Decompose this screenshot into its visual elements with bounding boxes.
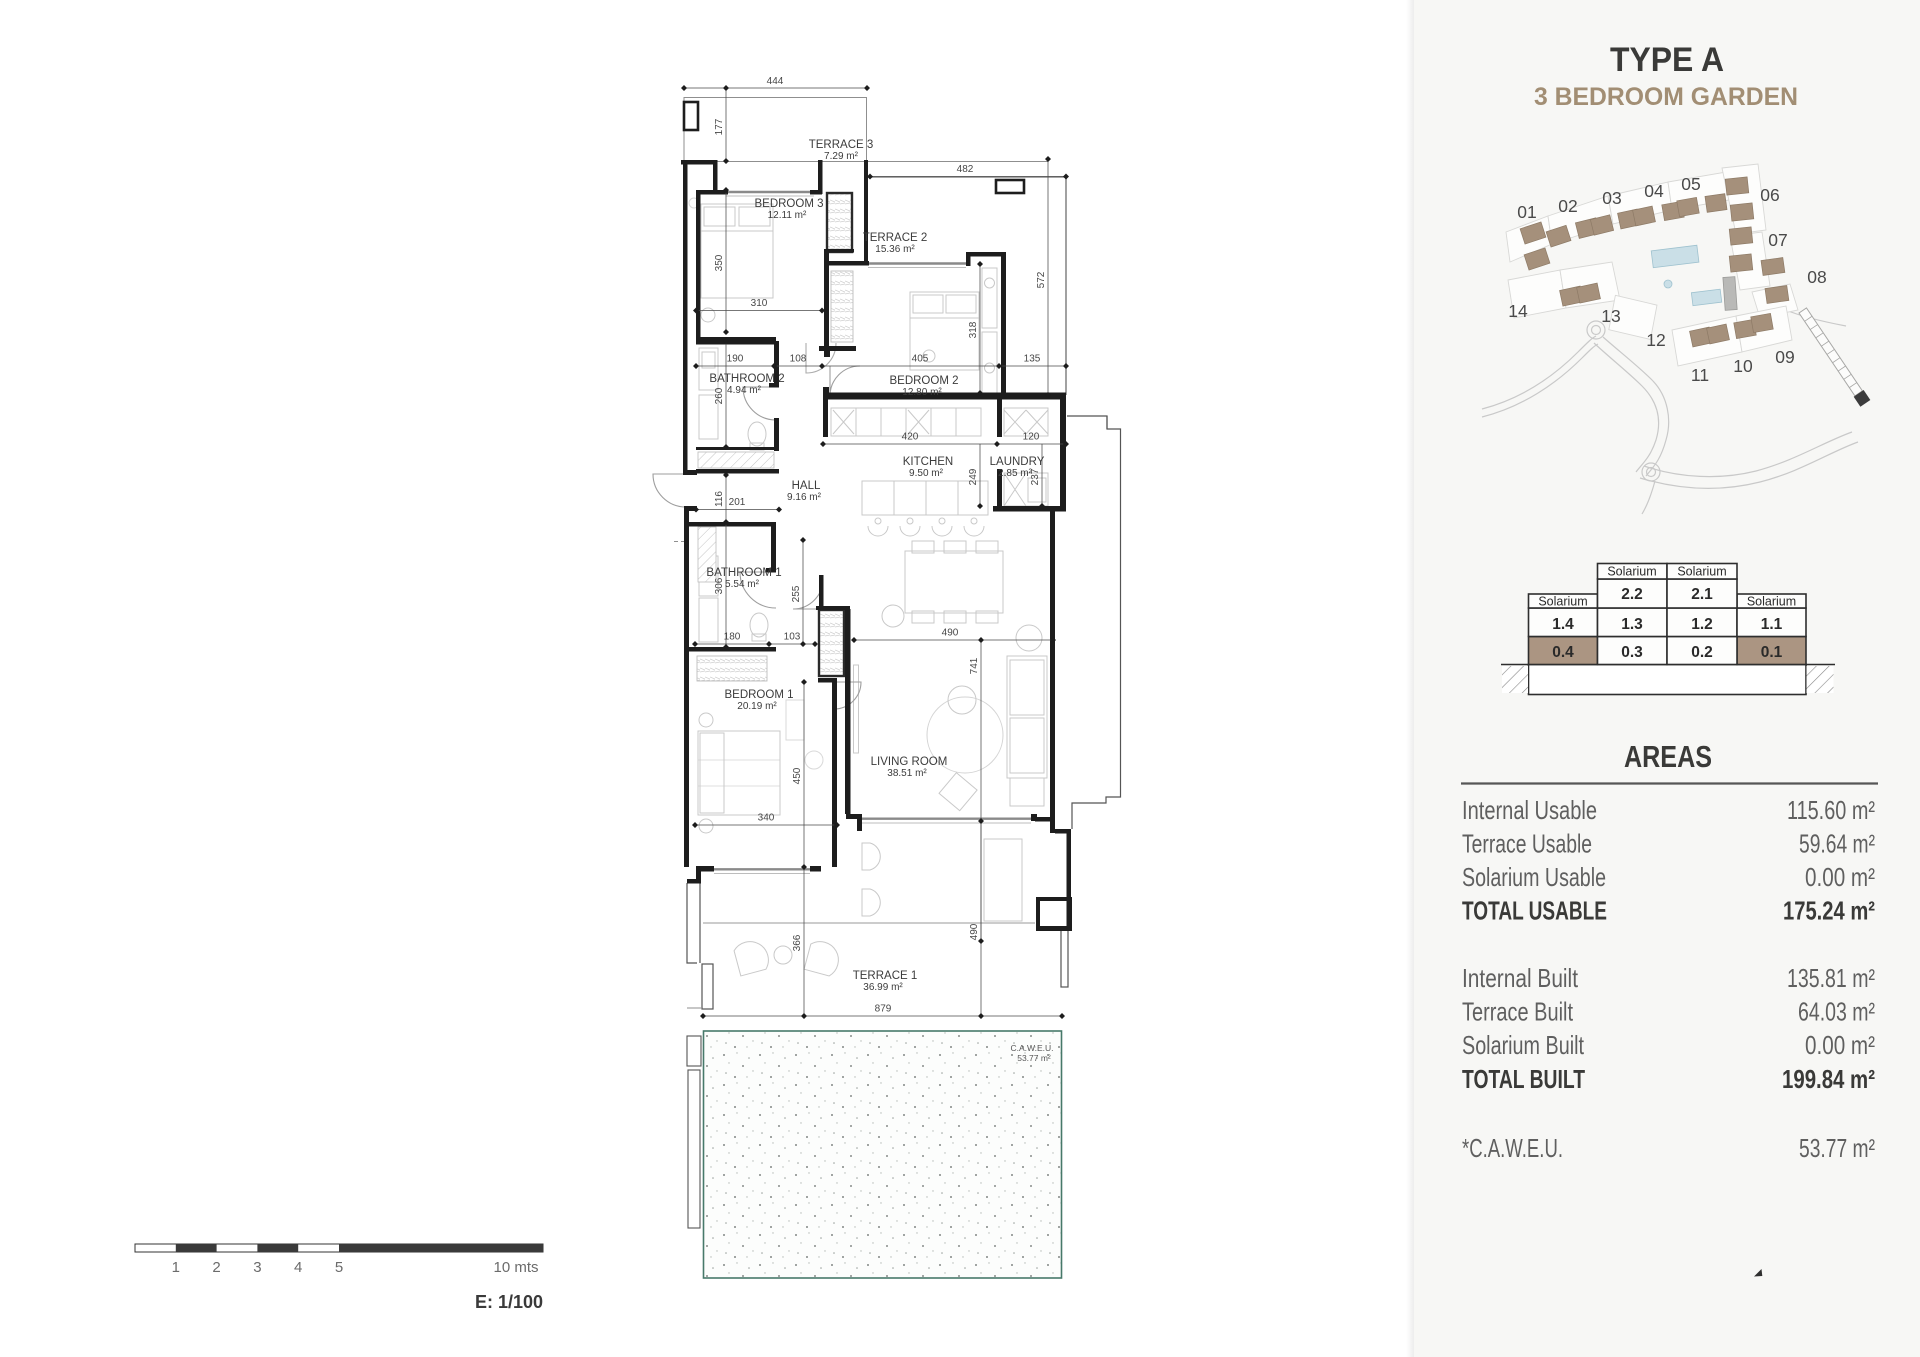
svg-text:53.77 m²: 53.77 m² — [1017, 1053, 1051, 1063]
svg-text:07: 07 — [1768, 230, 1787, 250]
svg-text:135.81 m²: 135.81 m² — [1787, 963, 1875, 993]
svg-text:190: 190 — [727, 354, 744, 365]
svg-text:59.64 m²: 59.64 m² — [1799, 829, 1875, 859]
svg-text:36.99 m²: 36.99 m² — [863, 982, 903, 993]
svg-text:12.11 m²: 12.11 m² — [768, 210, 807, 221]
svg-text:12: 12 — [1646, 330, 1665, 350]
svg-text:108: 108 — [790, 354, 807, 365]
svg-text:2.2: 2.2 — [1621, 586, 1643, 603]
svg-text:Terrace Built: Terrace Built — [1462, 997, 1574, 1027]
svg-text:11: 11 — [1691, 365, 1709, 385]
svg-text:15.36 m²: 15.36 m² — [875, 244, 915, 255]
svg-text:3: 3 — [253, 1259, 261, 1276]
svg-text:482: 482 — [957, 164, 974, 175]
svg-text:KITCHEN: KITCHEN — [903, 456, 953, 468]
svg-text:05: 05 — [1681, 174, 1700, 194]
svg-text:TYPE A: TYPE A — [1610, 41, 1724, 79]
svg-text:0.1: 0.1 — [1761, 644, 1783, 661]
svg-text:10: 10 — [1733, 356, 1753, 376]
svg-text:C.A.W.E.U.: C.A.W.E.U. — [1011, 1043, 1054, 1053]
svg-text:255: 255 — [791, 585, 802, 602]
svg-text:TOTAL BUILT: TOTAL BUILT — [1462, 1064, 1585, 1094]
svg-text:TERRACE 2: TERRACE 2 — [863, 232, 928, 244]
svg-text:1.2: 1.2 — [1691, 616, 1713, 633]
svg-text:5: 5 — [335, 1259, 343, 1276]
svg-text:Internal Built: Internal Built — [1462, 963, 1579, 993]
svg-text:Internal Usable: Internal Usable — [1462, 795, 1597, 825]
svg-text:444: 444 — [767, 76, 784, 87]
svg-text:135: 135 — [1024, 354, 1041, 365]
svg-text:318: 318 — [968, 321, 979, 338]
svg-text:879: 879 — [875, 1004, 892, 1015]
svg-text:366: 366 — [792, 934, 803, 951]
svg-text:420: 420 — [902, 432, 919, 443]
svg-text:HALL: HALL — [792, 480, 821, 492]
svg-text:310: 310 — [751, 298, 768, 309]
svg-text:2: 2 — [212, 1259, 220, 1276]
svg-text:03: 03 — [1602, 188, 1621, 208]
svg-text:405: 405 — [912, 354, 929, 365]
svg-text:12.80 m²: 12.80 m² — [902, 387, 942, 398]
svg-text:Solarium: Solarium — [1538, 595, 1587, 609]
svg-text:Solarium: Solarium — [1607, 565, 1656, 579]
svg-text:Solarium Usable: Solarium Usable — [1462, 862, 1606, 892]
svg-text:TERRACE 3: TERRACE 3 — [809, 139, 874, 151]
svg-text:AREAS: AREAS — [1624, 739, 1712, 774]
svg-text:1.4: 1.4 — [1552, 616, 1574, 633]
svg-text:340: 340 — [758, 813, 775, 824]
svg-text:64.03 m²: 64.03 m² — [1798, 997, 1875, 1027]
svg-text:BATHROOM 1: BATHROOM 1 — [706, 567, 781, 579]
svg-text:116: 116 — [714, 491, 725, 507]
svg-text:7.29 m²: 7.29 m² — [824, 151, 859, 162]
svg-text:0.00 m²: 0.00 m² — [1805, 1030, 1875, 1060]
svg-text:4.94 m²: 4.94 m² — [727, 385, 762, 396]
svg-text:741: 741 — [969, 657, 980, 674]
svg-text:1: 1 — [172, 1259, 180, 1276]
svg-text:1.1: 1.1 — [1761, 616, 1783, 633]
svg-text:201: 201 — [729, 497, 746, 508]
svg-text:08: 08 — [1807, 267, 1826, 287]
svg-text:2.85 m²: 2.85 m² — [998, 468, 1033, 479]
svg-text:E: 1/100: E: 1/100 — [475, 1292, 543, 1312]
svg-text:09: 09 — [1775, 347, 1794, 367]
svg-text:249: 249 — [968, 468, 979, 485]
svg-text:LAUNDRY: LAUNDRY — [990, 456, 1045, 468]
svg-text:9.16 m²: 9.16 m² — [787, 492, 822, 503]
svg-text:10 mts: 10 mts — [493, 1259, 538, 1276]
svg-text:3 BEDROOM GARDEN: 3 BEDROOM GARDEN — [1534, 83, 1798, 111]
svg-text:20.19 m²: 20.19 m² — [737, 701, 777, 712]
svg-text:490: 490 — [969, 923, 980, 940]
svg-text:TOTAL USABLE: TOTAL USABLE — [1462, 896, 1607, 926]
svg-text:306: 306 — [714, 577, 725, 594]
svg-text:2.1: 2.1 — [1691, 586, 1713, 603]
svg-text:Solarium Built: Solarium Built — [1462, 1030, 1585, 1060]
svg-text:04: 04 — [1644, 181, 1664, 201]
svg-text:120: 120 — [1023, 432, 1040, 443]
svg-text:14: 14 — [1508, 301, 1528, 321]
svg-text:BEDROOM 3: BEDROOM 3 — [754, 198, 823, 210]
svg-text:LIVING ROOM: LIVING ROOM — [871, 756, 948, 768]
svg-text:4: 4 — [294, 1259, 302, 1276]
svg-text:*C.A.W.E.U.: *C.A.W.E.U. — [1462, 1133, 1563, 1163]
svg-text:199.84 m²: 199.84 m² — [1782, 1064, 1875, 1094]
svg-text:BEDROOM 2: BEDROOM 2 — [889, 375, 958, 387]
svg-text:Solarium: Solarium — [1677, 565, 1726, 579]
svg-text:0.00 m²: 0.00 m² — [1805, 862, 1875, 892]
svg-text:180: 180 — [724, 632, 741, 643]
svg-text:115.60 m²: 115.60 m² — [1787, 795, 1875, 825]
svg-text:Terrace Usable: Terrace Usable — [1462, 829, 1592, 859]
svg-text:01: 01 — [1517, 202, 1536, 222]
svg-text:5.54 m²: 5.54 m² — [725, 579, 760, 590]
svg-text:572: 572 — [1036, 271, 1047, 288]
svg-text:350: 350 — [714, 254, 725, 271]
svg-text:TERRACE 1: TERRACE 1 — [853, 970, 918, 982]
svg-text:BEDROOM 1: BEDROOM 1 — [724, 689, 793, 701]
svg-text:490: 490 — [942, 628, 959, 639]
svg-text:53.77 m²: 53.77 m² — [1799, 1133, 1875, 1163]
svg-text:175.24 m²: 175.24 m² — [1783, 896, 1875, 926]
svg-text:103: 103 — [784, 632, 801, 643]
svg-text:38.51 m²: 38.51 m² — [887, 768, 927, 779]
svg-text:1.3: 1.3 — [1621, 616, 1643, 633]
svg-text:450: 450 — [792, 767, 803, 784]
svg-text:9.50 m²: 9.50 m² — [909, 468, 944, 479]
svg-text:02: 02 — [1558, 196, 1577, 216]
svg-text:177: 177 — [714, 118, 725, 135]
svg-text:06: 06 — [1760, 185, 1779, 205]
svg-text:13: 13 — [1601, 306, 1620, 326]
svg-text:0.3: 0.3 — [1621, 644, 1643, 661]
svg-text:260: 260 — [714, 387, 725, 404]
svg-text:BATHROOM 2: BATHROOM 2 — [709, 373, 784, 385]
svg-text:0.2: 0.2 — [1691, 644, 1713, 661]
svg-text:Solarium: Solarium — [1747, 595, 1796, 609]
svg-text:0.4: 0.4 — [1552, 644, 1574, 661]
